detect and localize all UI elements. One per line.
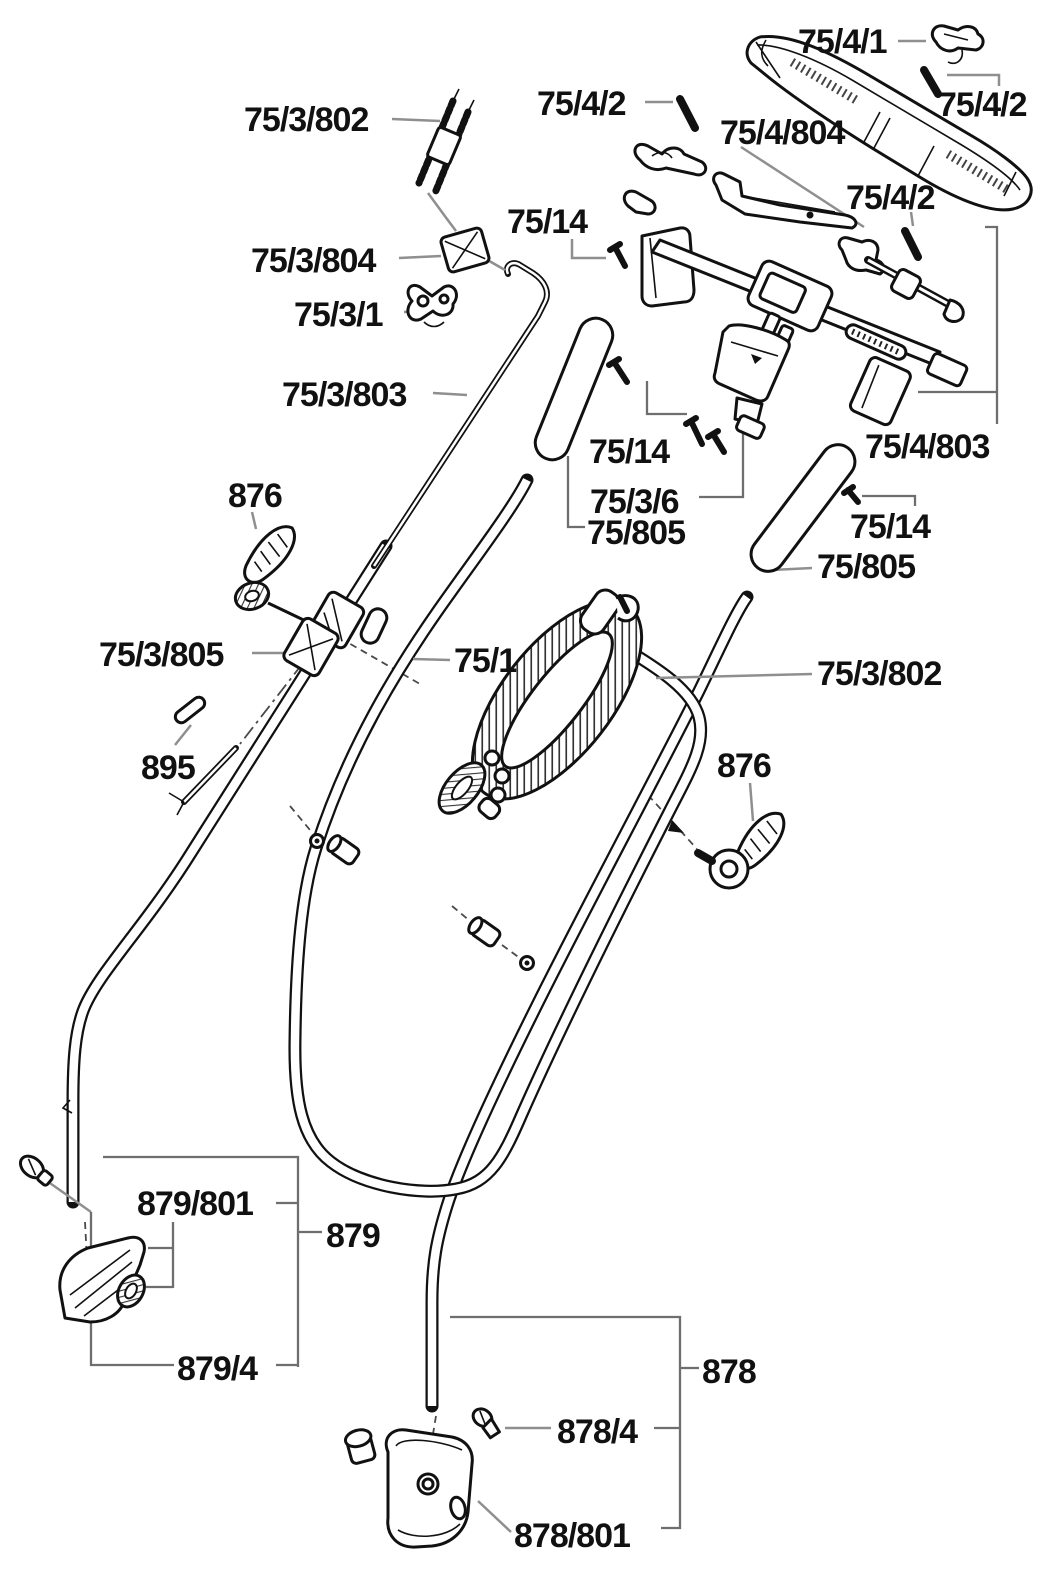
label-879-4: 879/4 (177, 1350, 258, 1388)
diagram-canvas: 75/4/1 75/4/2 75/4/2 75/4/804 75/14 75/4… (0, 0, 1061, 1589)
plug-878 (344, 1427, 377, 1465)
label-878-4: 878/4 (557, 1413, 638, 1451)
loop-bolts (311, 833, 534, 969)
label-75-4-1: 75/4/1 (798, 23, 887, 61)
double-pin-75-3-802 (419, 89, 474, 193)
label-75-3-802-right: 75/3/802 (817, 655, 941, 693)
block-75-3-804 (440, 227, 490, 273)
label-75-14-right: 75/14 (850, 508, 931, 546)
clamp-75-3-805 (282, 590, 390, 678)
label-879-801: 879/801 (137, 1185, 253, 1223)
label-75-4-803: 75/4/803 (865, 428, 989, 466)
cable-fork-tip (169, 793, 184, 815)
pin-895 (173, 695, 207, 725)
label-75-4-2-right: 75/4/2 (938, 86, 1027, 124)
hook-piece-top (635, 144, 706, 175)
pin-75-4-2-mid (905, 231, 918, 257)
label-75-805-right: 75/805 (817, 548, 915, 586)
exploded-parts-diagram: 75/4/1 75/4/2 75/4/2 75/4/804 75/14 75/4… (0, 0, 1061, 1589)
cable-75-3-803 (374, 263, 547, 566)
label-879: 879 (326, 1217, 380, 1255)
group-878 (344, 1405, 506, 1547)
handlebar-bracket-assembly (624, 191, 968, 426)
right-leg-block (849, 356, 913, 427)
funnel-75-3-6 (714, 325, 789, 440)
label-876-right: 876 (717, 747, 771, 785)
label-895: 895 (141, 749, 195, 787)
label-876-left: 876 (228, 477, 282, 515)
group-879 (16, 1152, 150, 1322)
label-75-4-804: 75/4/804 (720, 114, 845, 152)
label-75-1: 75/1 (454, 642, 516, 680)
label-75-14-midleft: 75/14 (589, 433, 670, 471)
clamp-75-3-1 (408, 285, 457, 326)
label-75-4-2-left: 75/4/2 (537, 85, 626, 123)
pin-75-4-2-left (680, 99, 695, 128)
pin-75-4-2-right (924, 70, 938, 94)
label-75-3-805: 75/3/805 (99, 636, 223, 674)
coiled-cable-75-3-802 (430, 573, 673, 827)
screw-878-4 (467, 1405, 505, 1440)
label-75-14-top: 75/14 (507, 203, 588, 241)
label-75-3-1: 75/3/1 (294, 296, 383, 334)
clip-75-4-1 (932, 26, 983, 64)
right-lever-sub-assembly (839, 238, 963, 322)
housing-878-801 (386, 1430, 472, 1547)
label-75-805-left: 75/805 (587, 514, 685, 552)
wing-knob-876-right (698, 805, 793, 888)
label-878-801: 878/801 (514, 1517, 630, 1555)
lever-75-4-804 (714, 173, 856, 228)
label-878: 878 (702, 1353, 756, 1391)
screw-879 (16, 1152, 55, 1189)
label-75-4-2-mid: 75/4/2 (846, 179, 935, 217)
label-75-3-802-topleft: 75/3/802 (244, 101, 368, 139)
label-75-3-804: 75/3/804 (251, 242, 376, 280)
label-75-3-803: 75/3/803 (282, 376, 406, 414)
